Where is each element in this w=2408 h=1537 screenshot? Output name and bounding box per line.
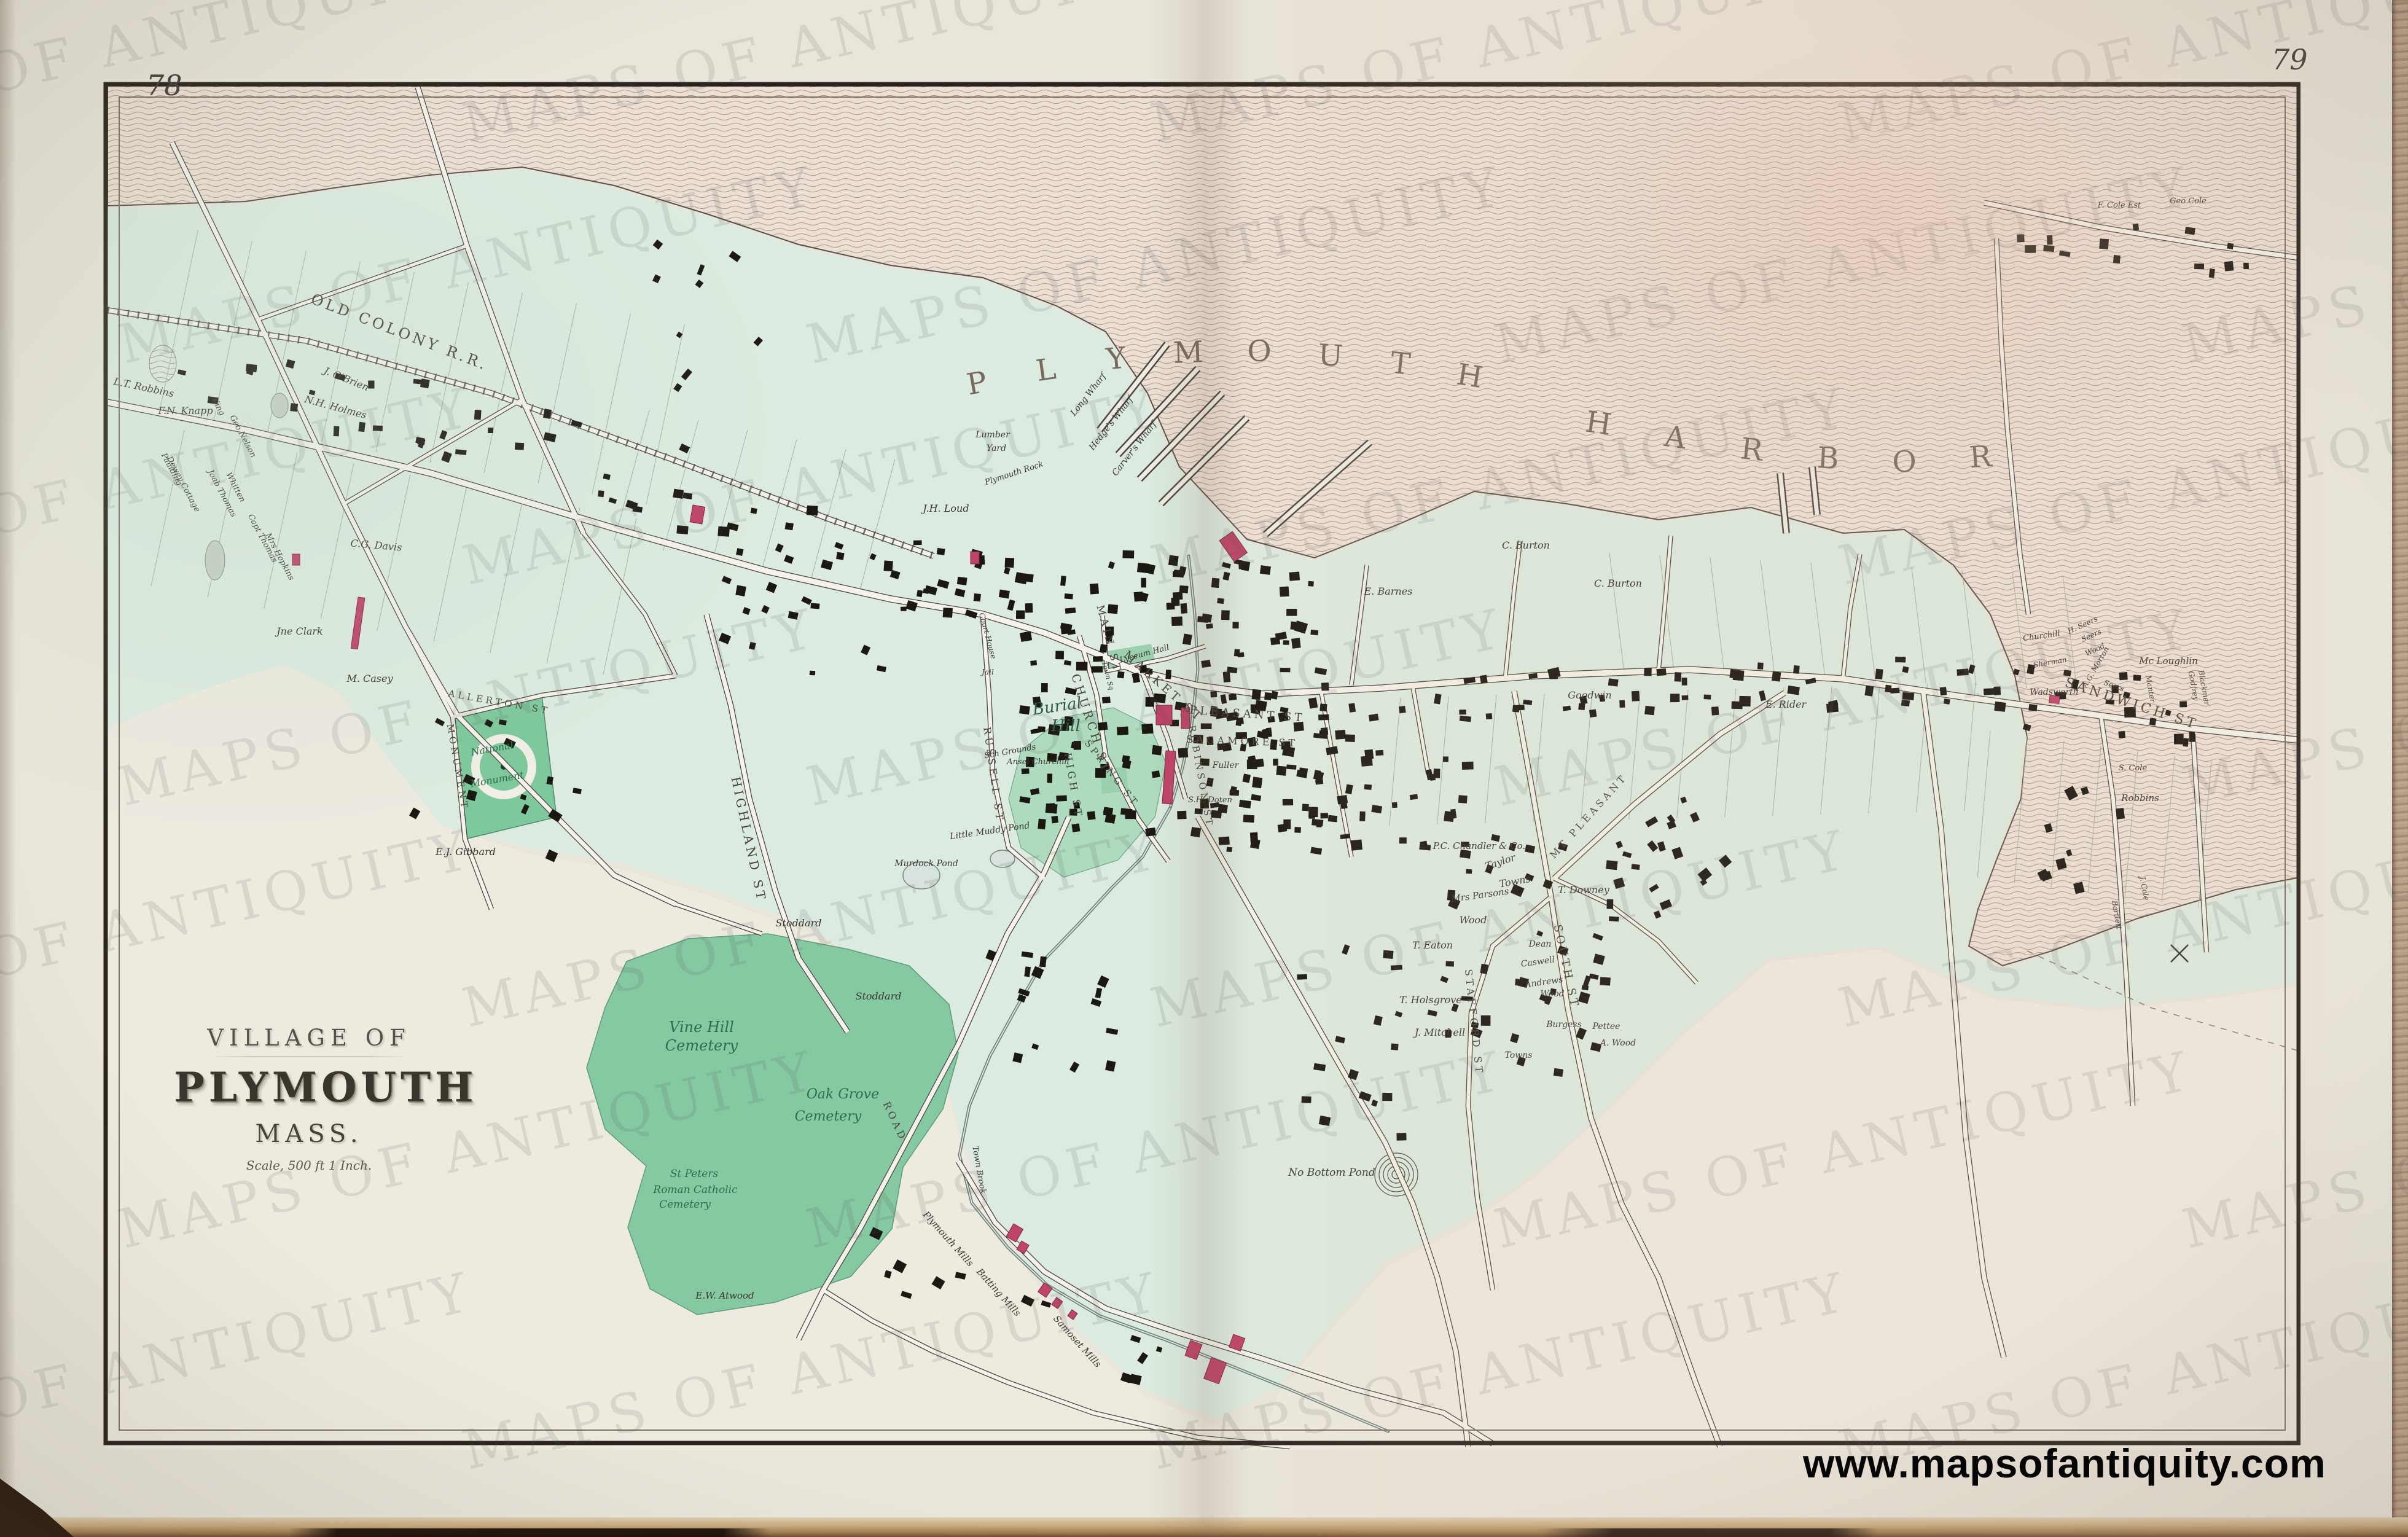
svg-text:C. Burton: C. Burton	[1594, 577, 1642, 589]
svg-text:Goodwin: Goodwin	[1568, 689, 1611, 701]
svg-text:Cemetery: Cemetery	[665, 1037, 738, 1054]
svg-text:E. Barnes: E. Barnes	[1364, 585, 1413, 597]
svg-text:H: H	[1584, 405, 1614, 442]
svg-text:Pettee: Pettee	[1592, 1022, 1620, 1031]
book-bottom-shadow	[0, 1528, 2408, 1537]
svg-text:Jne Clark: Jne Clark	[275, 625, 323, 637]
svg-text:Ansel Churchill: Ansel Churchill	[1006, 757, 1069, 767]
title-cartouche: VILLAGE OF PLYMOUTH MASS. Scale, 500 ft …	[174, 1025, 444, 1173]
map-engraving: OLD COLONY R.R.SANDWICH STHIGHLAND STCHU…	[96, 68, 2300, 1456]
svg-text:Stoddard: Stoddard	[776, 917, 822, 929]
photo-left-edge	[0, 0, 16, 1537]
svg-text:T: T	[1389, 346, 1412, 382]
svg-text:H: H	[1454, 357, 1485, 395]
svg-text:M. Casey: M. Casey	[346, 673, 393, 684]
svg-text:M: M	[1173, 335, 1204, 370]
svg-text:Dean: Dean	[1528, 939, 1552, 949]
svg-text:S. Cole: S. Cole	[2119, 764, 2148, 773]
svg-text:Murdock Pond: Murdock Pond	[894, 859, 958, 869]
svg-text:U: U	[1317, 338, 1343, 373]
svg-text:Wadsworth: Wadsworth	[2030, 687, 2078, 697]
book-binding-edge	[2392, 0, 2408, 1537]
svg-text:E.W. Atwood: E.W. Atwood	[695, 1290, 754, 1301]
page-number-left: 78	[146, 69, 182, 102]
svg-text:Vine Hill: Vine Hill	[669, 1019, 734, 1036]
map-scale-note: Scale, 500 ft 1 Inch.	[174, 1158, 444, 1173]
svg-text:Oak Grove: Oak Grove	[807, 1087, 879, 1102]
svg-text:J. Mitchell: J. Mitchell	[1413, 1027, 1465, 1038]
svg-text:R: R	[1968, 439, 1994, 475]
svg-text:T. Eaton: T. Eaton	[1412, 939, 1453, 951]
svg-text:Y: Y	[1104, 341, 1128, 377]
svg-text:P.C. Chandler & Co.: P.C. Chandler & Co.	[1433, 840, 1525, 851]
website-url: www.mapsofantiquity.com	[1803, 1440, 2326, 1487]
svg-text:Wood: Wood	[1460, 914, 1487, 926]
svg-text:Fuller: Fuller	[1212, 761, 1240, 770]
svg-text:Cemetery: Cemetery	[659, 1199, 711, 1211]
svg-text:Lumber: Lumber	[975, 430, 1011, 440]
svg-text:Burgess: Burgess	[1546, 1020, 1582, 1030]
flourish-divider	[211, 1054, 407, 1060]
svg-text:B: B	[1816, 440, 1840, 476]
map-title-village-of: VILLAGE OF	[174, 1025, 444, 1051]
svg-text:Hill: Hill	[1050, 717, 1081, 735]
svg-text:Robbins: Robbins	[2121, 792, 2159, 804]
svg-text:O: O	[1247, 334, 1271, 369]
svg-text:No Bottom Pond: No Bottom Pond	[1288, 1167, 1375, 1179]
svg-text:Stoddard: Stoddard	[856, 990, 902, 1002]
svg-text:E.J. Gibbard: E.J. Gibbard	[435, 846, 496, 858]
map-title-plymouth: PLYMOUTH	[174, 1063, 444, 1111]
svg-text:Roman Catholic: Roman Catholic	[652, 1184, 738, 1196]
svg-text:Yard: Yard	[987, 444, 1006, 453]
svg-text:C. Burton: C. Burton	[1502, 539, 1550, 551]
svg-text:T. Holsgrove: T. Holsgrove	[1399, 994, 1461, 1006]
svg-text:Mc Loughlin: Mc Loughlin	[2138, 655, 2198, 667]
antique-map-photo: 78 79 OLD COLONY R.R.SANDWICH STHIGHLAND…	[0, 0, 2408, 1537]
svg-text:E. Rider: E. Rider	[1765, 698, 1807, 710]
page-number-right: 79	[2272, 43, 2308, 76]
svg-text:Geo Cole: Geo Cole	[2170, 197, 2207, 206]
svg-text:F. Cole Est: F. Cole Est	[2097, 201, 2141, 210]
svg-text:Wood: Wood	[1540, 989, 1564, 999]
svg-text:T. Downey: T. Downey	[1558, 884, 1609, 896]
svg-text:F.N. Knapp: F.N. Knapp	[157, 405, 213, 417]
svg-text:A. Wood: A. Wood	[1599, 1038, 1636, 1048]
svg-text:Jail: Jail	[980, 668, 994, 676]
svg-text:St Peters: St Peters	[670, 1168, 719, 1180]
svg-text:J.H. Loud: J.H. Loud	[921, 503, 969, 514]
map-title-mass: MASS.	[174, 1120, 444, 1148]
svg-text:O: O	[1892, 445, 1916, 479]
svg-text:S.H. Doten: S.H. Doten	[1188, 796, 1232, 805]
svg-text:Towns: Towns	[1505, 1050, 1533, 1060]
svg-text:Cemetery: Cemetery	[795, 1109, 862, 1124]
